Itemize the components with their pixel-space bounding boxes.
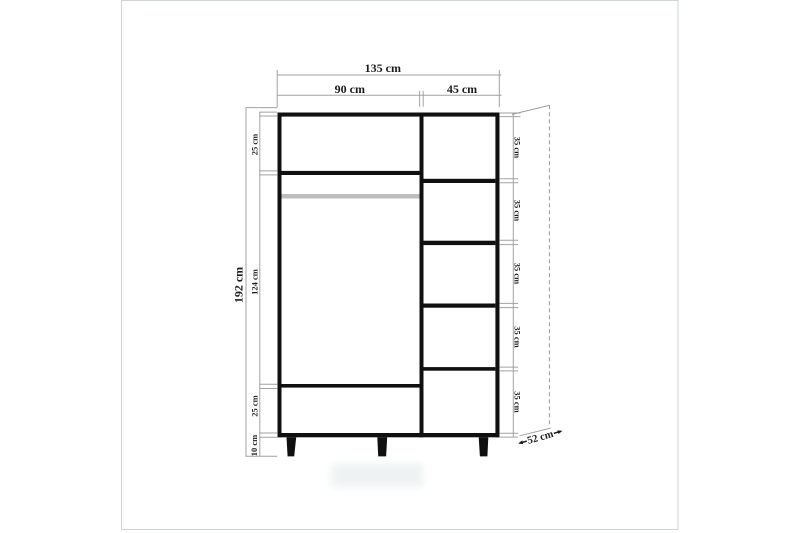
svg-text:35 cm: 35 cm xyxy=(513,263,523,284)
svg-text:35 cm: 35 cm xyxy=(513,137,523,158)
svg-text:45 cm: 45 cm xyxy=(447,82,477,96)
svg-text:135 cm: 135 cm xyxy=(365,61,401,75)
svg-text:90 cm: 90 cm xyxy=(335,82,365,96)
svg-text:35 cm: 35 cm xyxy=(513,200,523,221)
svg-text:52 cm: 52 cm xyxy=(526,429,555,447)
svg-text:124 cm: 124 cm xyxy=(250,269,260,295)
svg-text:10 cm: 10 cm xyxy=(249,435,259,456)
svg-text:35 cm: 35 cm xyxy=(513,391,523,412)
svg-text:192 cm: 192 cm xyxy=(232,267,246,303)
svg-text:25 cm: 25 cm xyxy=(250,134,260,155)
svg-text:35 cm: 35 cm xyxy=(513,326,523,347)
svg-text:25 cm: 25 cm xyxy=(250,395,260,416)
